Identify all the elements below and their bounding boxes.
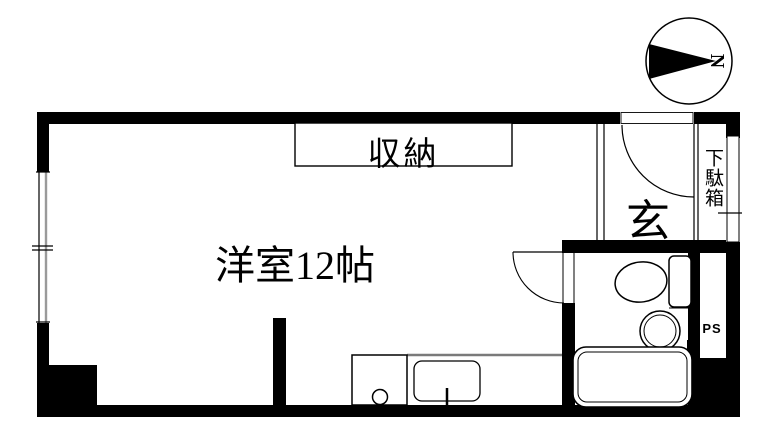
shoe-cabinet-label: 下駄箱	[699, 148, 726, 224]
kitchen	[352, 355, 562, 407]
pipe-space-label: PS	[697, 321, 727, 336]
wall-segment	[726, 112, 740, 138]
wash-basin	[640, 311, 680, 351]
plumbing-valve	[687, 340, 698, 350]
entrance-label: 玄	[620, 185, 676, 249]
wall-corner-column	[49, 365, 97, 405]
compass-north-label: N	[704, 48, 730, 74]
bathroom-fixtures	[573, 256, 700, 407]
toilet-tank	[669, 256, 691, 307]
main-room-label: 洋室12帖	[175, 233, 415, 291]
stove-burner-icon	[373, 390, 388, 405]
toilet-bowl	[612, 259, 669, 306]
wall-segment	[37, 124, 49, 172]
closet-label: 収納	[295, 127, 512, 175]
left-window	[32, 172, 53, 323]
partition-stub-wall	[273, 318, 286, 405]
window-outline	[727, 136, 739, 242]
bathroom-door-swing-arc	[513, 252, 564, 303]
bathroom-door-opening	[562, 253, 575, 303]
wall-segment	[37, 112, 620, 124]
bathroom-door	[513, 252, 575, 303]
entry-door-frame	[621, 113, 693, 124]
pipe-space-bottom-block	[688, 358, 740, 405]
bathtub	[573, 347, 692, 407]
wall-segment	[37, 323, 49, 405]
floor-plan-page: 収納 洋室12帖 玄 下駄箱 PS N	[0, 0, 773, 438]
